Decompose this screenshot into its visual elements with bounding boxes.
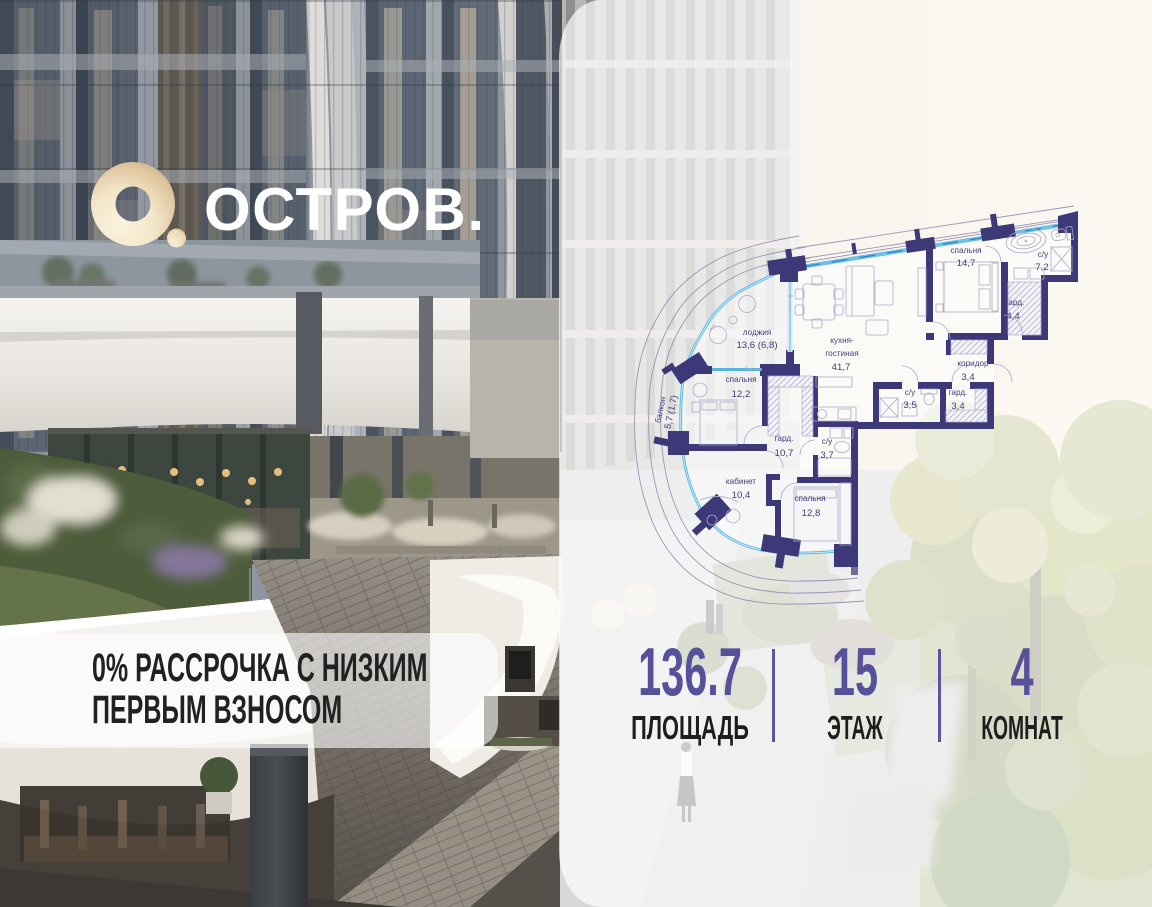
svg-text:10,7: 10,7 [775,448,794,459]
svg-text:коридор: коридор [957,359,989,368]
svg-text:гард.: гард. [775,434,794,443]
svg-text:гостиная: гостиная [825,349,858,358]
svg-text:с/у: с/у [1038,250,1049,259]
svg-text:3,7: 3,7 [820,450,833,461]
svg-text:7,2: 7,2 [1035,262,1048,273]
svg-text:спальня: спальня [725,375,756,384]
svg-text:12,2: 12,2 [732,389,751,400]
svg-text:кухня-: кухня- [830,336,854,345]
svg-text:3,4: 3,4 [951,401,965,412]
svg-text:10,4: 10,4 [732,490,751,501]
svg-text:гард.: гард. [949,388,968,397]
svg-text:спальня: спальня [794,494,825,503]
svg-text:спальня: спальня [950,246,981,255]
svg-text:41,7: 41,7 [832,362,851,373]
svg-text:3,5: 3,5 [903,400,916,411]
svg-text:3,4: 3,4 [961,372,975,383]
svg-text:гард.: гард. [1006,298,1025,307]
svg-text:14,7: 14,7 [957,258,976,269]
svg-text:с/у: с/у [905,388,916,397]
svg-text:4,4: 4,4 [1006,311,1020,322]
svg-text:с/у: с/у [822,437,833,446]
svg-text:лоджия: лоджия [743,328,772,337]
svg-text:13,6 (6,8): 13,6 (6,8) [736,340,777,351]
svg-text:кабинет: кабинет [726,477,756,486]
svg-text:12,8: 12,8 [802,508,821,519]
